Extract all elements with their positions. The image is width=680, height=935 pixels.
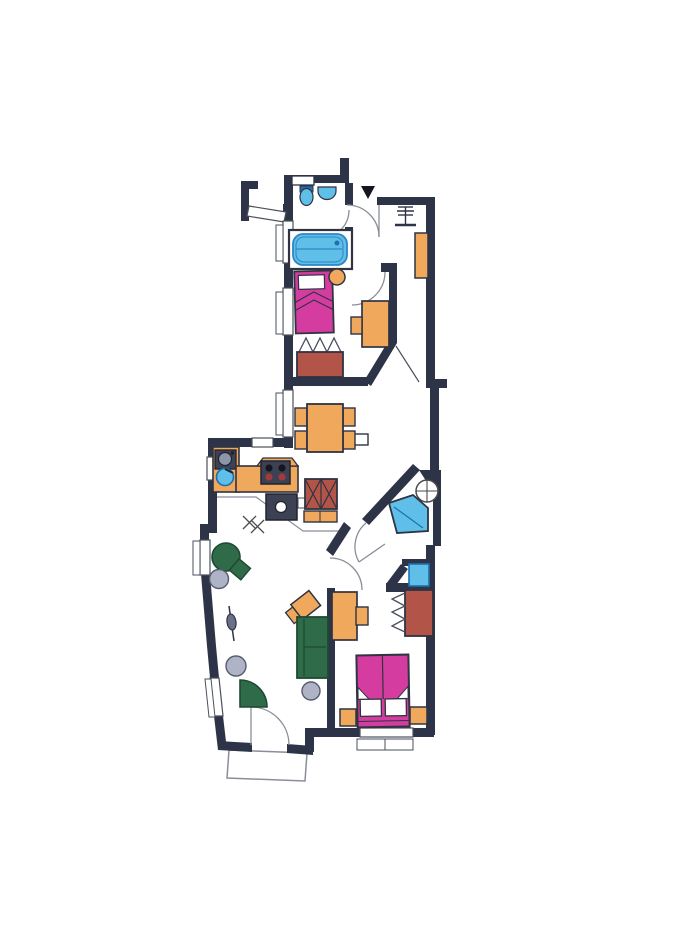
terrace-outline — [227, 750, 307, 781]
wardrobe1-hangers — [299, 338, 341, 352]
window-sill-dining — [276, 393, 283, 435]
bathtub-drain — [335, 241, 340, 246]
toilet1-bowl — [300, 189, 313, 206]
wall-left-seg3 — [284, 335, 293, 390]
washing-machine-door — [219, 453, 232, 466]
window-sill-bath1 — [276, 225, 283, 261]
desk-bedroom2 — [332, 592, 357, 640]
pouf-1 — [210, 570, 229, 589]
bed-double-pillow-right — [385, 699, 406, 716]
dining-chair-2 — [295, 431, 307, 449]
wall-left-seg4 — [284, 437, 293, 448]
chair-blue — [409, 564, 429, 586]
coat-rack-icon — [395, 207, 416, 225]
window-bed2 — [360, 728, 413, 737]
wall-kitchen-top-right — [273, 438, 284, 447]
bed-double-pillow-left — [360, 699, 381, 716]
pouf-3 — [302, 682, 320, 700]
wall-living-bottom-left — [218, 741, 252, 752]
hall-cabinet — [415, 233, 428, 278]
door-arc-terrace — [251, 707, 289, 745]
door-leaf-bath2 — [359, 544, 385, 562]
wardrobe1 — [297, 352, 343, 377]
sink1 — [318, 187, 336, 200]
pouf-2 — [226, 656, 246, 676]
wall-outer-right-mid — [430, 387, 439, 470]
nightstand-left — [340, 709, 356, 726]
wc-shelf — [292, 176, 314, 185]
dining-chair-3 — [343, 408, 355, 426]
wall-left-seg2 — [284, 269, 293, 288]
door-arc-bedroom2 — [330, 558, 362, 590]
dishwasher-door — [276, 502, 287, 513]
wall-entry-stub — [340, 158, 349, 183]
wall-wc-divider — [345, 183, 353, 205]
nightstand-right — [410, 707, 427, 724]
wall-bed2-bottom-left — [313, 728, 360, 737]
dining-table — [307, 404, 343, 452]
wall-living-left-3 — [207, 646, 219, 678]
ceiling-light-icon — [243, 516, 264, 533]
wall-bed1-bottom — [284, 377, 368, 386]
bed-single-pillow — [298, 275, 324, 290]
wall-outer-right-bath — [433, 470, 441, 546]
wall-outer-right-top — [426, 197, 435, 387]
door-arc-bath2 — [355, 523, 366, 562]
window-bed1 — [283, 288, 293, 335]
wardrobe2-hangers — [392, 593, 405, 632]
dining-chair-1 — [295, 408, 307, 426]
wall-outer-right-stub — [426, 379, 447, 388]
wardrobe2 — [405, 590, 433, 636]
chair-bedroom1 — [351, 317, 362, 334]
stove — [261, 461, 290, 484]
armchair-quarter — [240, 680, 267, 707]
window-protrusion — [247, 206, 286, 222]
washing-machine-knob — [231, 451, 235, 455]
wall-corridor-diag-left — [326, 522, 351, 556]
window-sill-bed1 — [276, 292, 283, 334]
floor-lamp-shade — [226, 613, 237, 630]
stove-burner-2 — [278, 464, 285, 471]
bed-double-center-line — [382, 655, 383, 699]
door-arc-bedroom1 — [352, 272, 385, 305]
desk-bedroom1 — [362, 301, 389, 347]
wall-step-living-bed2 — [305, 728, 314, 752]
door-leaf-corridor — [396, 346, 419, 382]
dining-chair-4 — [343, 431, 355, 449]
stove-burner-3 — [265, 473, 272, 480]
stove-burner-4 — [278, 473, 285, 480]
window-kitchen-top — [252, 438, 273, 447]
window-dining — [283, 390, 293, 437]
chair-bedroom2 — [356, 607, 368, 625]
wall-bed2-bottom-right — [413, 728, 434, 737]
bed-double — [356, 655, 409, 728]
stove-burner-1 — [265, 464, 272, 471]
stool-round — [329, 269, 345, 285]
floor-plan — [0, 0, 680, 935]
window-living-upper — [200, 540, 210, 575]
floor-plan-page — [0, 0, 680, 935]
wall-entry-right — [377, 197, 433, 205]
bed-single — [294, 271, 334, 334]
window-sill-living-upper — [193, 541, 200, 575]
entrance-arrow-icon — [361, 186, 375, 199]
wall-bed1-right — [389, 267, 397, 343]
